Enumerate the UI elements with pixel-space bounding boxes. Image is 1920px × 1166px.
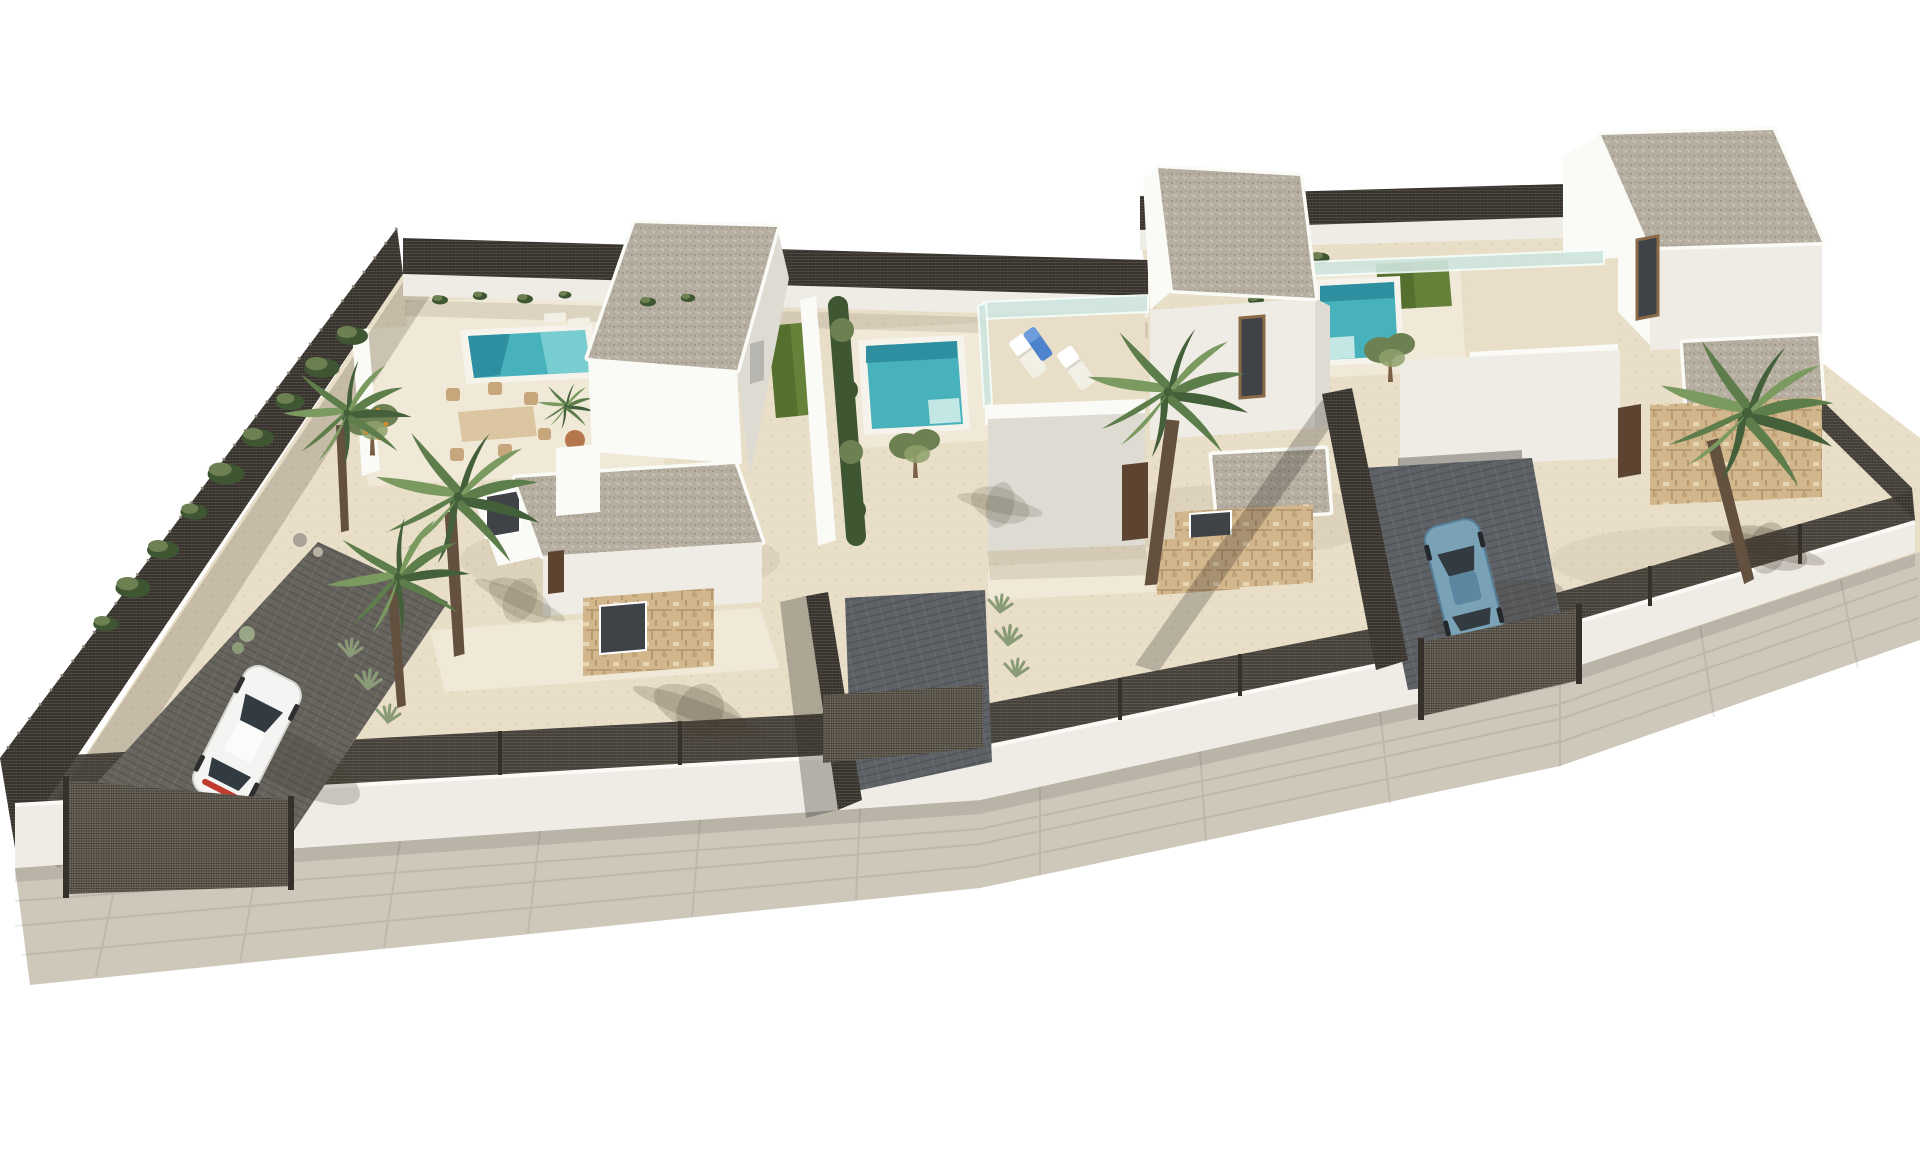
scene-svg <box>0 0 1920 1166</box>
right-block-window <box>1637 236 1658 319</box>
left-annex-gravel-roof <box>515 464 762 556</box>
dining-chair <box>446 388 460 401</box>
fence-post <box>1648 566 1652 606</box>
cactus-ball <box>232 642 244 654</box>
pool-lounger-2 <box>568 317 591 328</box>
middle-front-face <box>988 413 1145 551</box>
left-stone-window <box>600 602 646 654</box>
gate-post <box>63 776 69 898</box>
right-front-face <box>1400 350 1620 468</box>
hedge-bump <box>830 318 854 342</box>
left-block-south-face <box>588 358 742 464</box>
dining-chair <box>488 382 502 395</box>
hedge-bump <box>839 440 863 464</box>
gate-post <box>1576 604 1582 684</box>
hedge-bump <box>836 379 858 401</box>
middle-block-window <box>1240 316 1264 398</box>
dining-chair <box>524 392 538 405</box>
pool-lounger-1 <box>544 312 567 323</box>
left-annex-door <box>548 550 564 594</box>
dining-table <box>458 406 537 442</box>
middle-front-ground-shadow <box>988 545 1150 580</box>
hedge-bump <box>844 499 866 521</box>
gate-left <box>67 780 292 894</box>
pool-middle-step <box>928 398 961 424</box>
gate-post <box>288 796 294 890</box>
middle-front-door <box>1122 462 1148 541</box>
pool-left-light <box>540 330 591 374</box>
dining-chair <box>538 428 551 440</box>
right-front-door <box>1618 404 1641 478</box>
middle-block-gravel-roof <box>1158 168 1315 298</box>
cactus-ball <box>239 626 255 642</box>
architectural-render: Aerial 3D architectural rendering of thr… <box>0 0 1920 1166</box>
left-pergola-wall <box>556 444 600 516</box>
rock <box>293 533 307 547</box>
right-terrace-floor <box>1470 258 1618 360</box>
dining-chair <box>450 448 464 461</box>
left-block-east-window <box>750 340 764 384</box>
fence-post <box>1118 678 1122 720</box>
gate-post <box>1418 638 1424 720</box>
fence-post <box>1238 654 1242 696</box>
fence-post <box>498 731 502 775</box>
rock <box>313 547 323 557</box>
